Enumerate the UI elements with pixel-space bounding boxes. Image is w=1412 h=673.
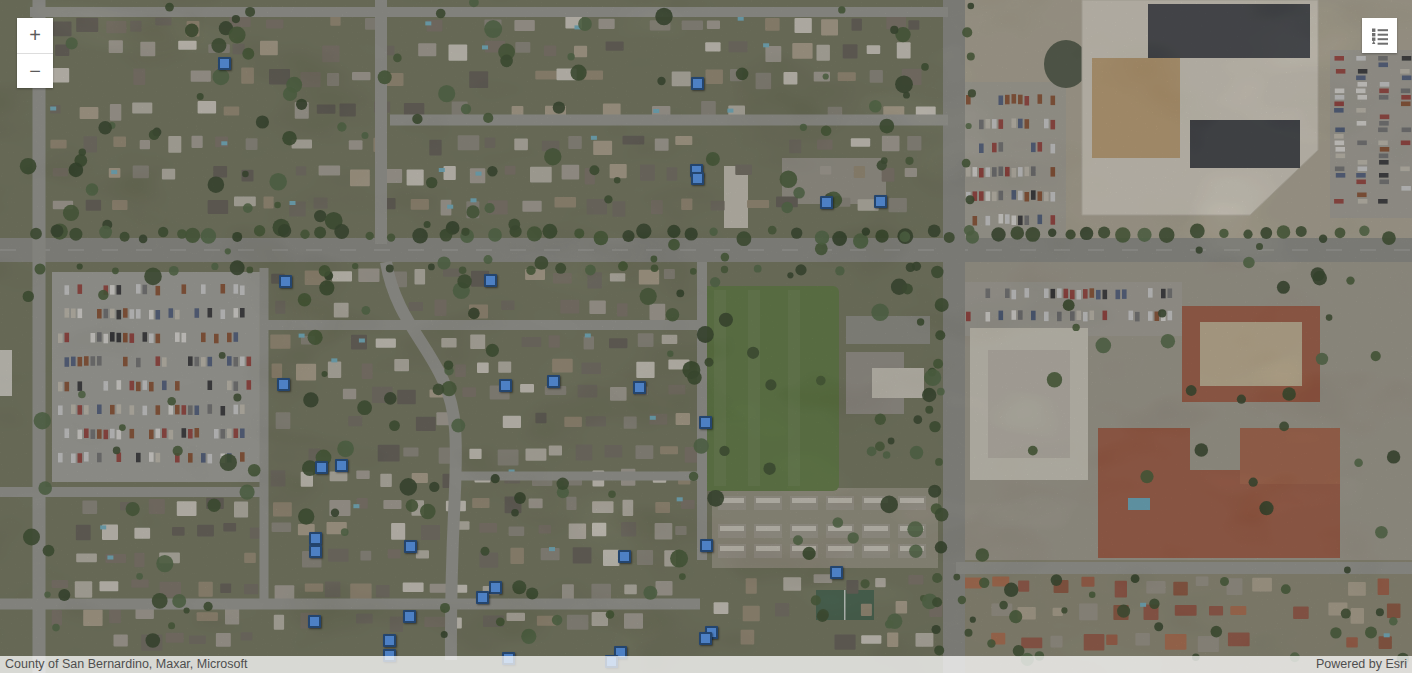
map-marker[interactable] — [403, 610, 416, 623]
map-marker[interactable] — [700, 539, 713, 552]
map-marker[interactable] — [830, 566, 843, 579]
map-marker[interactable] — [547, 375, 560, 388]
map-marker[interactable] — [633, 381, 646, 394]
map-marker[interactable] — [218, 57, 231, 70]
map-marker[interactable] — [699, 632, 712, 645]
attribution-sources: County of San Bernardino, Maxar, Microso… — [5, 656, 247, 673]
map-marker[interactable] — [618, 550, 631, 563]
map-marker[interactable] — [820, 196, 833, 209]
map-marker[interactable] — [476, 591, 489, 604]
map-marker[interactable] — [279, 275, 292, 288]
legend-list-icon — [1371, 27, 1389, 45]
map-marker[interactable] — [484, 274, 497, 287]
map-marker[interactable] — [308, 615, 321, 628]
map-marker[interactable] — [309, 545, 322, 558]
map-marker[interactable] — [691, 77, 704, 90]
zoom-control: + − — [17, 18, 53, 88]
legend-button[interactable] — [1362, 18, 1397, 53]
map-marker[interactable] — [691, 172, 704, 185]
map-marker[interactable] — [404, 540, 417, 553]
zoom-in-button[interactable]: + — [17, 18, 53, 53]
attribution-bar: County of San Bernardino, Maxar, Microso… — [0, 656, 1412, 673]
map-marker[interactable] — [277, 378, 290, 391]
map-marker[interactable] — [874, 195, 887, 208]
map-marker[interactable] — [335, 459, 348, 472]
zoom-out-button[interactable]: − — [17, 53, 53, 88]
map-viewport[interactable]: + − County of San Bernardino, Maxar, Mic… — [0, 0, 1412, 673]
map-marker[interactable] — [489, 581, 502, 594]
map-marker[interactable] — [383, 634, 396, 647]
map-marker[interactable] — [315, 461, 328, 474]
map-marker[interactable] — [309, 532, 322, 545]
map-marker[interactable] — [499, 379, 512, 392]
attribution-powered-by[interactable]: Powered by Esri — [1316, 656, 1407, 673]
map-marker[interactable] — [699, 416, 712, 429]
satellite-basemap — [0, 0, 1412, 673]
